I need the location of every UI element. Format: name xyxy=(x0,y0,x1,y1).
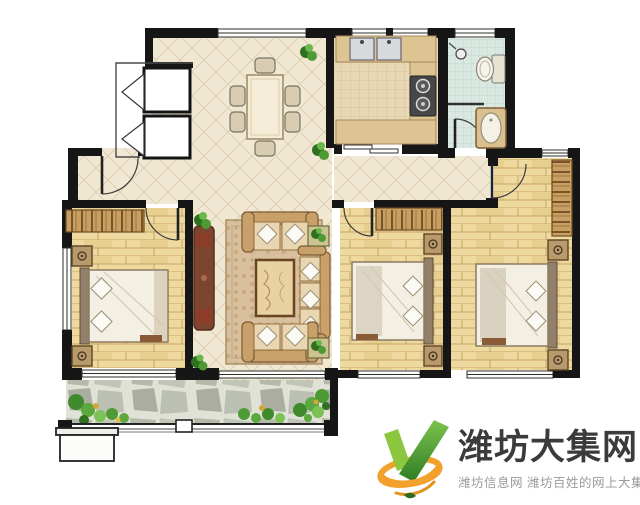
dining-chair xyxy=(285,112,300,132)
balcony-rail-post xyxy=(176,420,192,432)
entry-shafts xyxy=(116,63,193,158)
dining-chair xyxy=(230,86,245,106)
wardrobe xyxy=(376,208,442,230)
dining-chair xyxy=(255,58,275,73)
watermark-text: 潍坊大集网 潍坊信息网 潍坊百姓的网上大集 xyxy=(458,414,640,491)
bed xyxy=(80,268,168,344)
wardrobe xyxy=(66,210,144,232)
balcony-floor xyxy=(66,380,330,425)
bed xyxy=(352,258,433,344)
watermark-title: 潍坊大集网 xyxy=(458,430,640,465)
watermark: 潍坊大集网 潍坊信息网 潍坊百姓的网上大集 xyxy=(374,414,640,502)
hallway-floor xyxy=(334,156,490,202)
floor-plan-page: 潍坊大集网 潍坊信息网 潍坊百姓的网上大集 xyxy=(0,0,640,505)
shaft-box-bottom xyxy=(144,116,190,158)
dining-table xyxy=(247,75,283,139)
bed xyxy=(476,262,557,348)
dining-chair xyxy=(255,141,275,156)
kitchen-counter-bottom xyxy=(336,120,436,144)
plant-pot-bottom xyxy=(308,338,329,358)
shaft-box-top xyxy=(144,68,190,112)
watermark-subtitle: 潍坊信息网 潍坊百姓的网上大集 xyxy=(458,472,640,491)
stove xyxy=(410,76,436,116)
ac-platform xyxy=(56,428,118,461)
dining-chair xyxy=(285,86,300,106)
shaft-door-mark-top xyxy=(122,74,144,110)
plant-pot-top xyxy=(308,226,329,246)
wardrobe xyxy=(552,160,572,236)
weifang-daji-logo-icon xyxy=(374,414,456,502)
kitchen-sliding-door xyxy=(344,145,398,153)
coffee-table xyxy=(256,260,294,316)
dining-chair xyxy=(230,112,245,132)
sofa-bottom xyxy=(242,322,318,362)
tv-cabinet xyxy=(194,226,214,330)
bathtub xyxy=(476,108,506,148)
